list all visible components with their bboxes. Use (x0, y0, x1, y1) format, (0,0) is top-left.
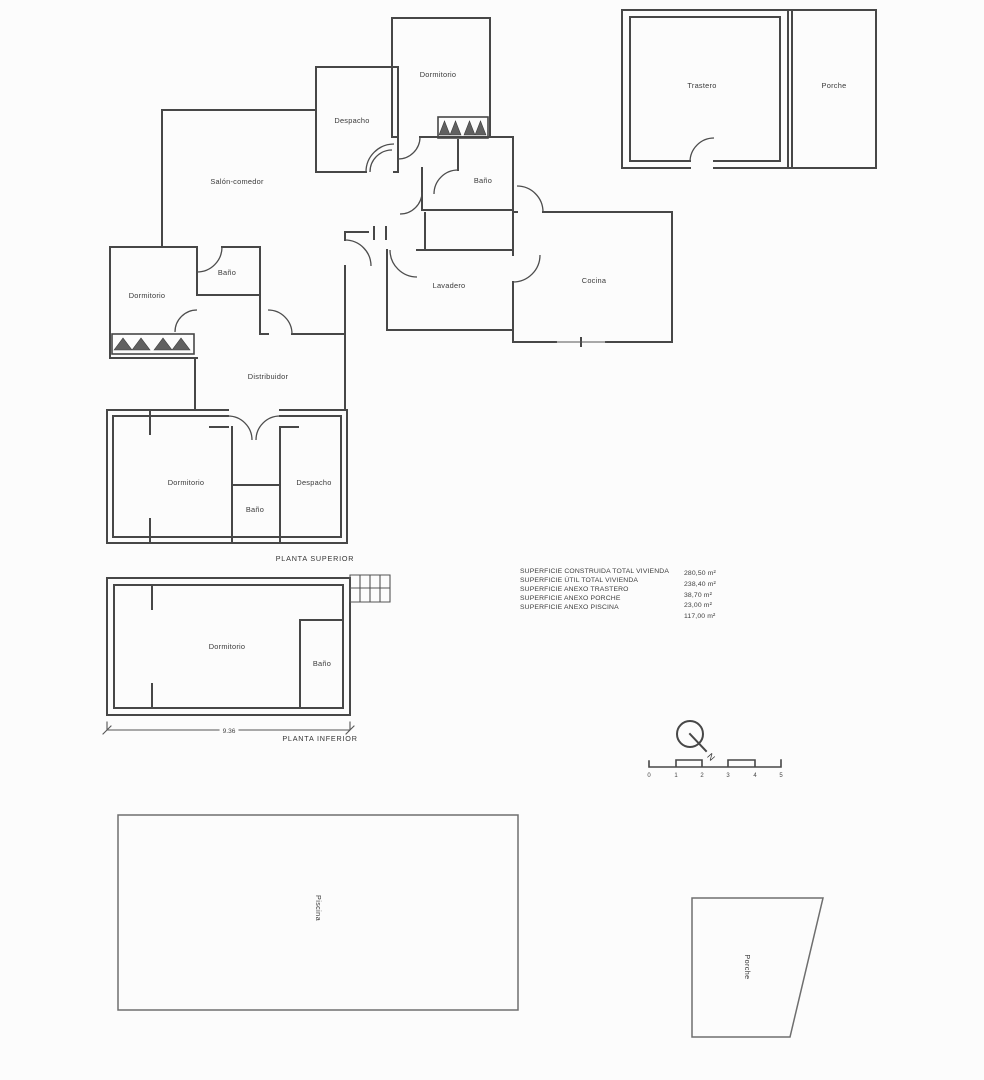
upper-floor-plan: Salón-comedor Despacho Dormitorio Baño C… (107, 18, 672, 563)
porche-outline (692, 898, 823, 1037)
scale-tick: 0 (647, 773, 651, 779)
scale-bar-line (649, 760, 781, 767)
room-label-distribuidor: Distribuidor (248, 372, 289, 381)
porche-outdoor-plan: Porche (692, 898, 823, 1037)
area-row-label: SUPERFICIE CONSTRUIDA TOTAL VIVIENDA (520, 568, 669, 575)
room-label-despacho-bottom: Despacho (296, 478, 331, 487)
room-label-trastero: Trastero (687, 81, 716, 90)
area-row-label: SUPERFICIE ANEXO TRASTERO (520, 586, 629, 593)
area-row-label: SUPERFICIE ANEXO PISCINA (520, 604, 619, 611)
stairs-grid (350, 575, 390, 602)
area-row-value: 280,50 m² (684, 570, 717, 577)
piscina-plan: Piscina (118, 815, 518, 1010)
area-row-value: 117,00 m² (684, 613, 716, 620)
room-label-dormitorio-top: Dormitorio (420, 70, 457, 79)
room-label-bano-lower: Baño (313, 659, 331, 668)
scale-tick: 2 (700, 773, 704, 779)
double-door-arcs (228, 416, 280, 440)
room-label-bano-bottom: Baño (246, 505, 264, 514)
lower-floor-caption: PLANTA INFERIOR (282, 734, 357, 743)
room-label-piscina: Piscina (314, 895, 323, 921)
closet-top-dormitorio (438, 117, 488, 138)
lower-floor-plan: Dormitorio Baño 9.36 PLANTA INFERIOR (103, 575, 390, 743)
north-compass: N (677, 721, 717, 763)
room-label-dormitorio-bottom: Dormitorio (168, 478, 205, 487)
upper-floor-door-arcs (175, 137, 543, 334)
area-row-value: 23,00 m² (684, 602, 713, 609)
room-label-cocina: Cocina (582, 276, 607, 285)
area-row-label: SUPERFICIE ÚTIL TOTAL VIVIENDA (520, 575, 638, 584)
area-row-value: 238,40 m² (684, 581, 717, 588)
closet-left-dormitorio (112, 334, 194, 354)
scale-tick: 5 (779, 773, 783, 779)
room-label-dormitorio-lower: Dormitorio (209, 642, 246, 651)
room-label-despacho-top: Despacho (334, 116, 369, 125)
area-row-value: 38,70 m² (684, 592, 713, 599)
room-label-porche-annex: Porche (822, 81, 847, 90)
north-letter: N (705, 751, 717, 763)
room-label-bano-left: Baño (218, 268, 236, 277)
area-row-label: SUPERFICIE ANEXO PORCHE (520, 595, 621, 602)
room-label-dormitorio-left: Dormitorio (129, 291, 166, 300)
scale-tick: 3 (726, 773, 730, 779)
upper-floor-caption: PLANTA SUPERIOR (276, 554, 355, 563)
room-label-bano-top: Baño (474, 176, 492, 185)
scale-tick: 1 (674, 773, 678, 779)
upper-floor-bottom-block-walls (107, 410, 347, 543)
scale-tick: 4 (753, 773, 757, 779)
room-label-porche-outdoor: Porche (743, 954, 752, 979)
room-label-lavadero: Lavadero (433, 281, 466, 290)
areas-table: SUPERFICIE CONSTRUIDA TOTAL VIVIENDA 280… (520, 568, 717, 620)
trastero-door-arc (690, 138, 714, 162)
room-label-salon: Salón-comedor (210, 177, 264, 186)
annex-plan: Trastero Porche (622, 10, 876, 168)
dimension-value: 9.36 (223, 728, 236, 735)
floor-plan-drawing: Salón-comedor Despacho Dormitorio Baño C… (0, 0, 984, 1080)
scale-bar: 0 1 2 3 4 5 (647, 760, 783, 779)
